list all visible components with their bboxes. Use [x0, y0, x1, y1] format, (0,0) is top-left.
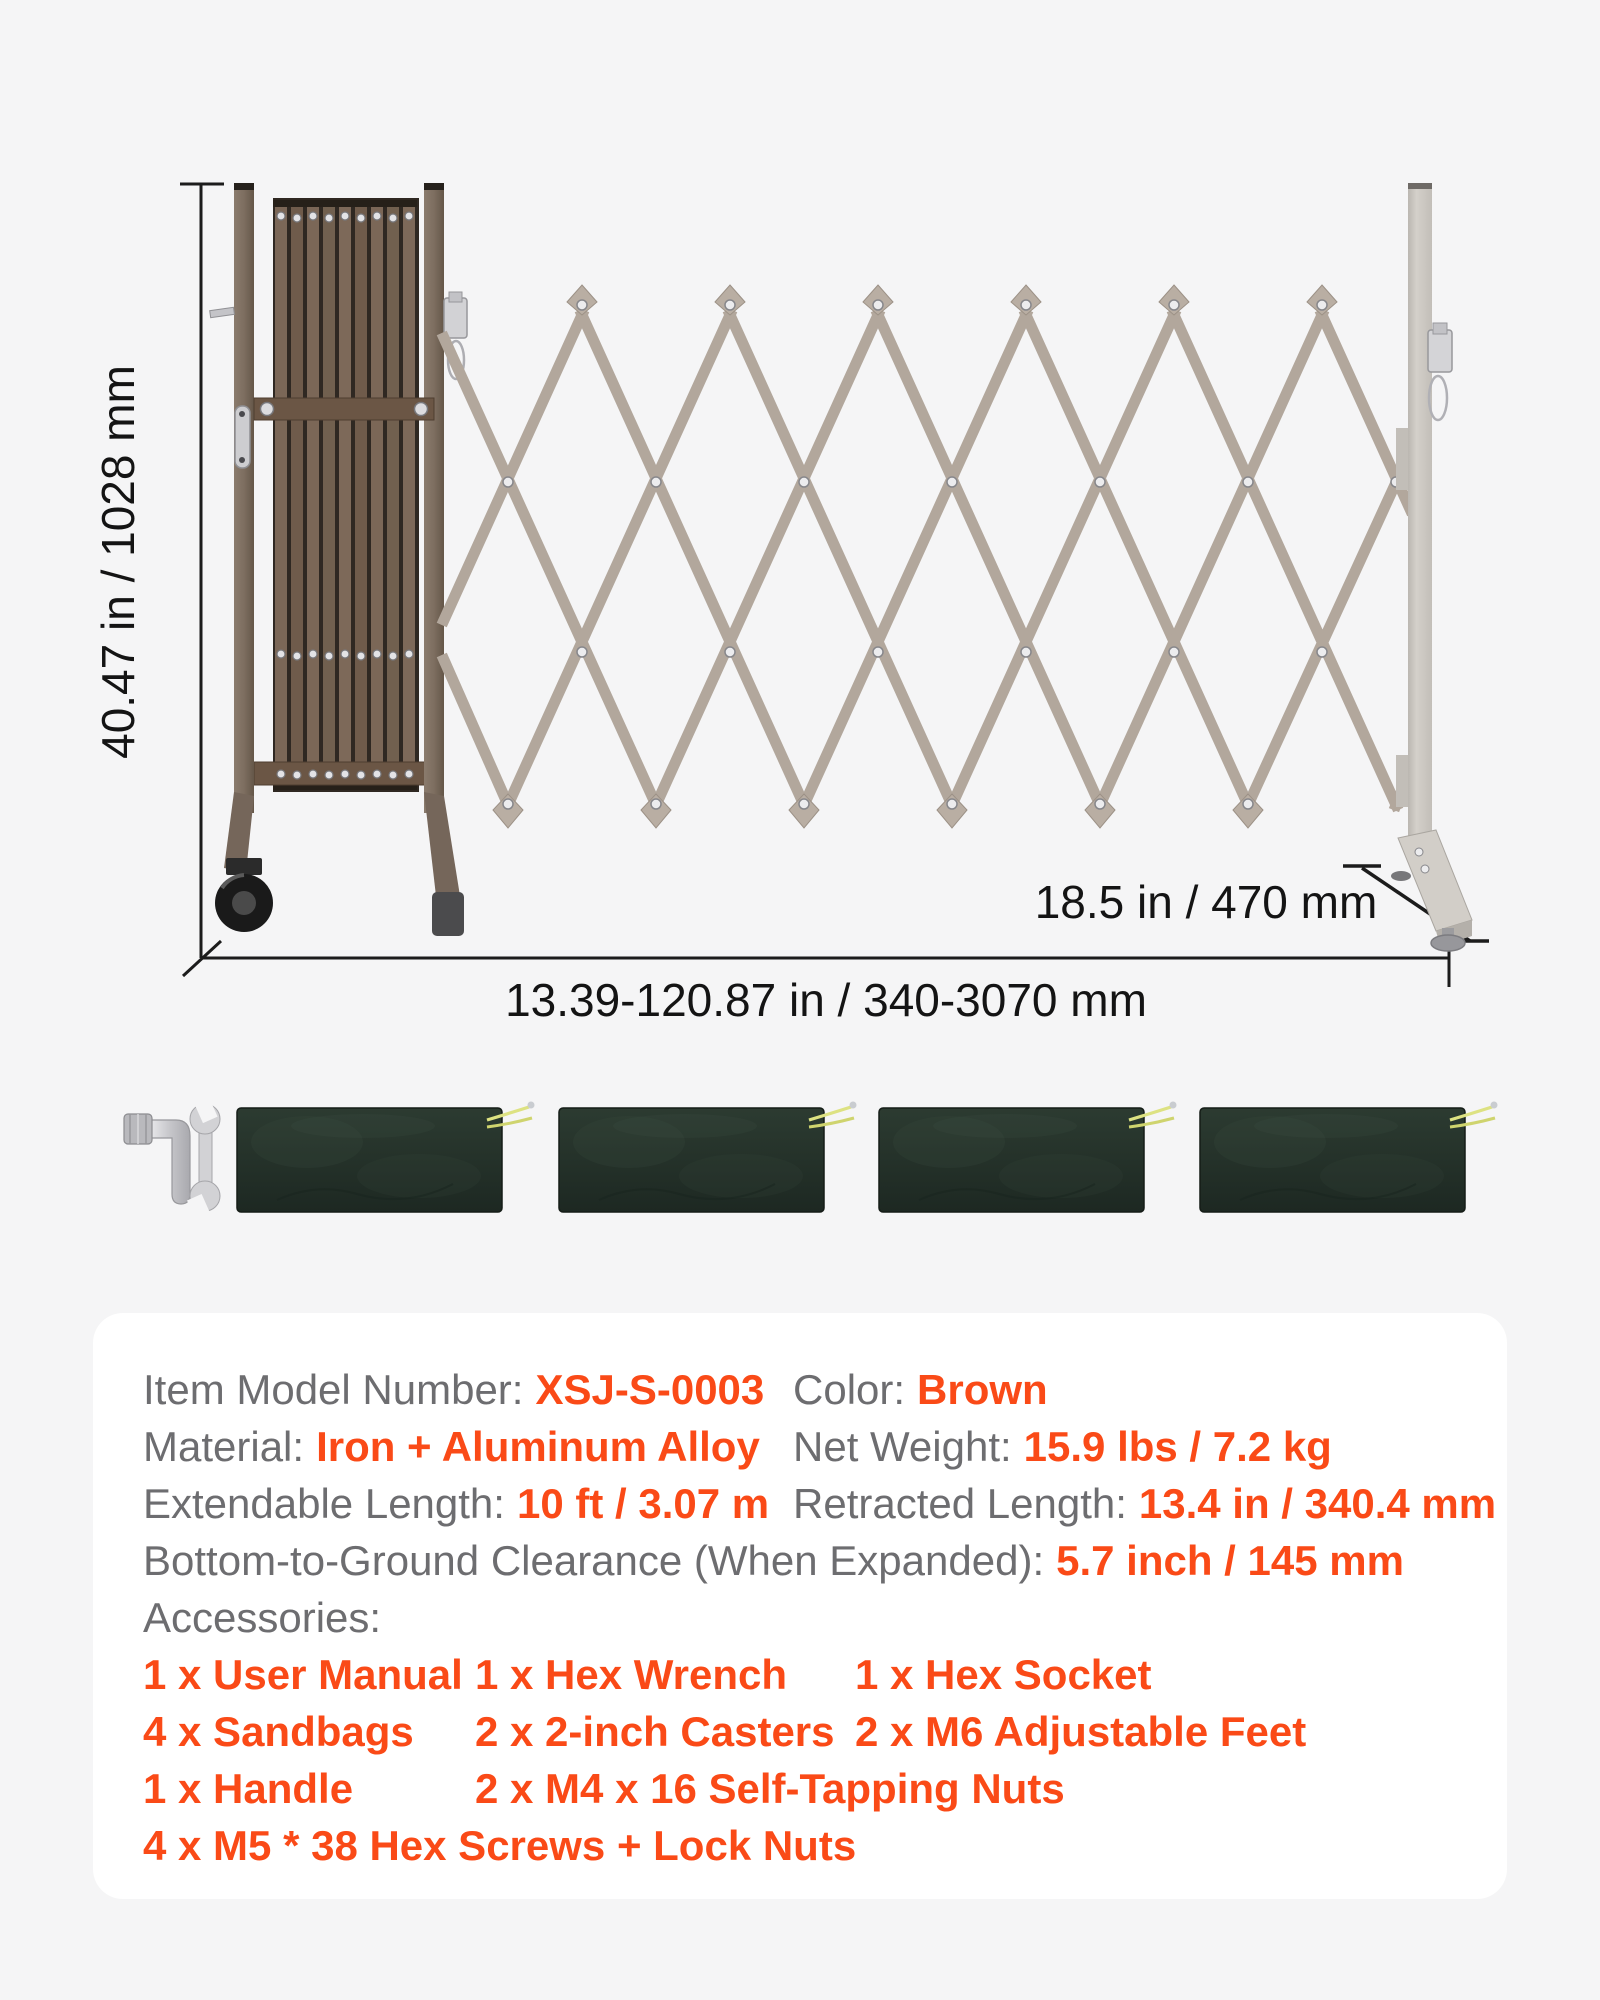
depth-dimension-label: 18.5 in / 470 mm [1035, 876, 1378, 928]
spec-row-lengths: Extendable Length:10 ft / 3.07 m Retract… [143, 1475, 1467, 1532]
clearance-label: Bottom-to-Ground Clearance (When Expande… [143, 1532, 1044, 1589]
right-post [1408, 183, 1432, 843]
scissor-lattice [444, 315, 1410, 805]
accessory-user-manual: 1 x User Manual [143, 1646, 475, 1703]
weight-value: 15.9 lbs / 7.2 kg [1024, 1423, 1332, 1470]
clearance-value: 5.7 inch / 145 mm [1056, 1532, 1404, 1589]
wrench-icon [187, 1092, 220, 1225]
spec-row-model-color: Item Model Number:XSJ-S-0003 Color:Brown [143, 1361, 1467, 1418]
middle-pivot-bar [254, 398, 434, 420]
adjustable-foot-disc [1431, 935, 1465, 951]
accessories-row-3: 1 x Handle 2 x M4 x 16 Self-Tapping Nuts [143, 1760, 1467, 1817]
height-dimension-label: 40.47 in / 1028 mm [92, 365, 144, 759]
spec-row-accessories-title: Accessories: [143, 1589, 1467, 1646]
extendable-label: Extendable Length: [143, 1480, 505, 1527]
retracted-label: Retracted Length: [793, 1480, 1127, 1527]
material-value: Iron + Aluminum Alloy [316, 1423, 760, 1470]
caster-bracket [226, 858, 262, 875]
left-foot-cap [432, 892, 464, 936]
accessory-hex-wrench: 1 x Hex Wrench [475, 1646, 855, 1703]
accessories-row-1: 1 x User Manual 1 x Hex Wrench 1 x Hex S… [143, 1646, 1467, 1703]
retracted-value: 13.4 in / 340.4 mm [1139, 1480, 1496, 1527]
sandbag-1 [237, 1102, 535, 1213]
hex-key-icon [124, 1114, 190, 1204]
accessory-sandbags: 4 x Sandbags [143, 1703, 475, 1760]
right-post-assembly [1391, 183, 1472, 951]
accessories-title: Accessories: [143, 1589, 381, 1646]
sandbag-2 [559, 1102, 857, 1213]
sandbag-3 [879, 1102, 1177, 1213]
right-foot [1391, 830, 1472, 951]
accessories-row-4: 4 x M5 * 38 Hex Screws + Lock Nuts [143, 1817, 1467, 1874]
accessory-casters: 2 x 2-inch Casters [475, 1703, 855, 1760]
color-label: Color: [793, 1366, 905, 1413]
accessory-hex-screws: 4 x M5 * 38 Hex Screws + Lock Nuts [143, 1817, 1467, 1874]
model-value: XSJ-S-0003 [535, 1366, 764, 1413]
left-rear-leg [424, 792, 460, 896]
color-value: Brown [917, 1366, 1048, 1413]
left-outer-post [234, 183, 254, 813]
material-label: Material: [143, 1423, 304, 1470]
left-inner-post [424, 183, 444, 813]
accordion-slats [273, 200, 417, 790]
folded-gate-section [210, 183, 467, 936]
length-dimension-label: 13.39-120.87 in / 340-3070 mm [505, 974, 1147, 1026]
lower-bracket [1396, 755, 1409, 807]
wall-pin [210, 307, 235, 317]
extendable-value: 10 ft / 3.07 m [517, 1480, 769, 1527]
weight-label: Net Weight: [793, 1423, 1012, 1470]
upper-bracket [1396, 428, 1409, 490]
spec-row-clearance: Bottom-to-Ground Clearance (When Expande… [143, 1532, 1467, 1589]
accessories-row-2: 4 x Sandbags 2 x 2-inch Casters 2 x M6 A… [143, 1703, 1467, 1760]
model-label: Item Model Number: [143, 1366, 523, 1413]
product-illustration: 40.47 in / 1028 mm 13.39-120.87 in / 340… [0, 0, 1600, 1270]
accessory-hex-socket: 1 x Hex Socket [855, 1646, 1467, 1703]
accessory-self-tapping-nuts: 2 x M4 x 16 Self-Tapping Nuts [475, 1760, 1467, 1817]
accessory-adjustable-feet: 2 x M6 Adjustable Feet [855, 1703, 1467, 1760]
spec-panel: Item Model Number:XSJ-S-0003 Color:Brown… [93, 1313, 1507, 1899]
spec-row-material-weight: Material:Iron + Aluminum Alloy Net Weigh… [143, 1418, 1467, 1475]
sandbag-4 [1200, 1102, 1498, 1213]
accessory-handle: 1 x Handle [143, 1760, 475, 1817]
